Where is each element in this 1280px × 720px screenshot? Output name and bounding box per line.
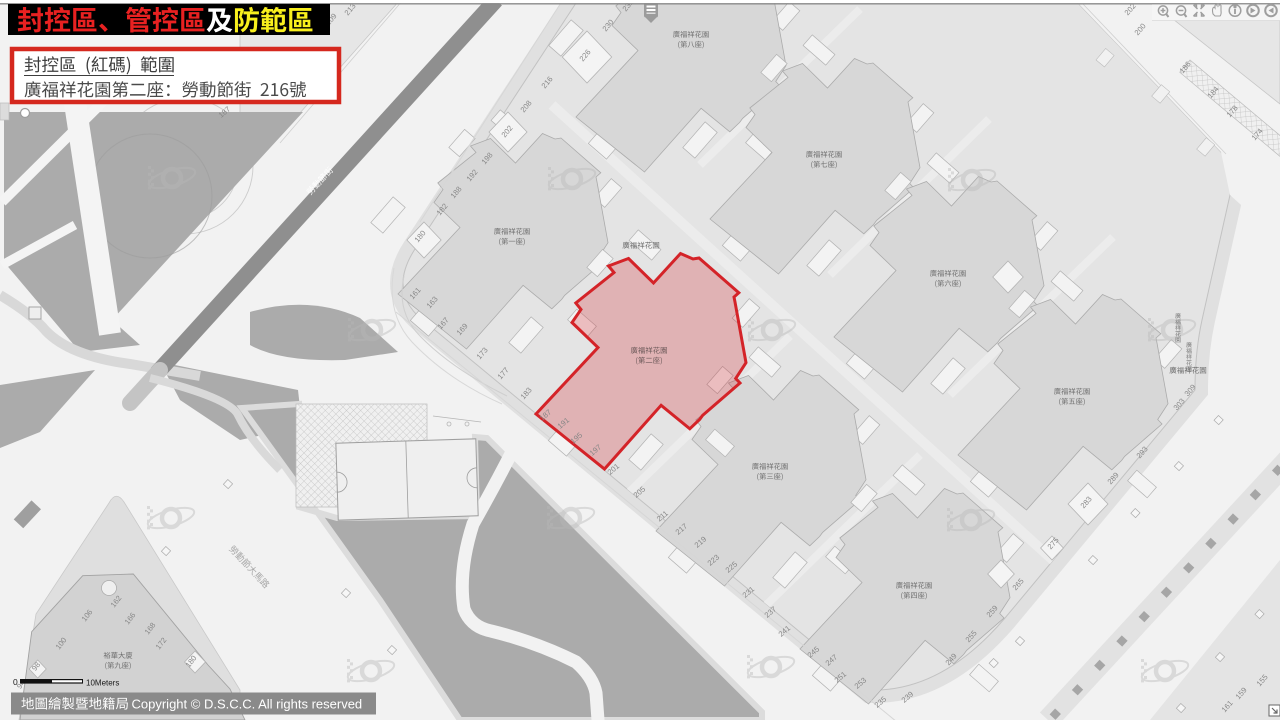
- svg-text:10Meters: 10Meters: [86, 679, 119, 688]
- svg-text:0: 0: [13, 677, 18, 687]
- svg-text:Copyright © D.S.C.C. All right: Copyright © D.S.C.C. All rights reserved: [132, 697, 363, 712]
